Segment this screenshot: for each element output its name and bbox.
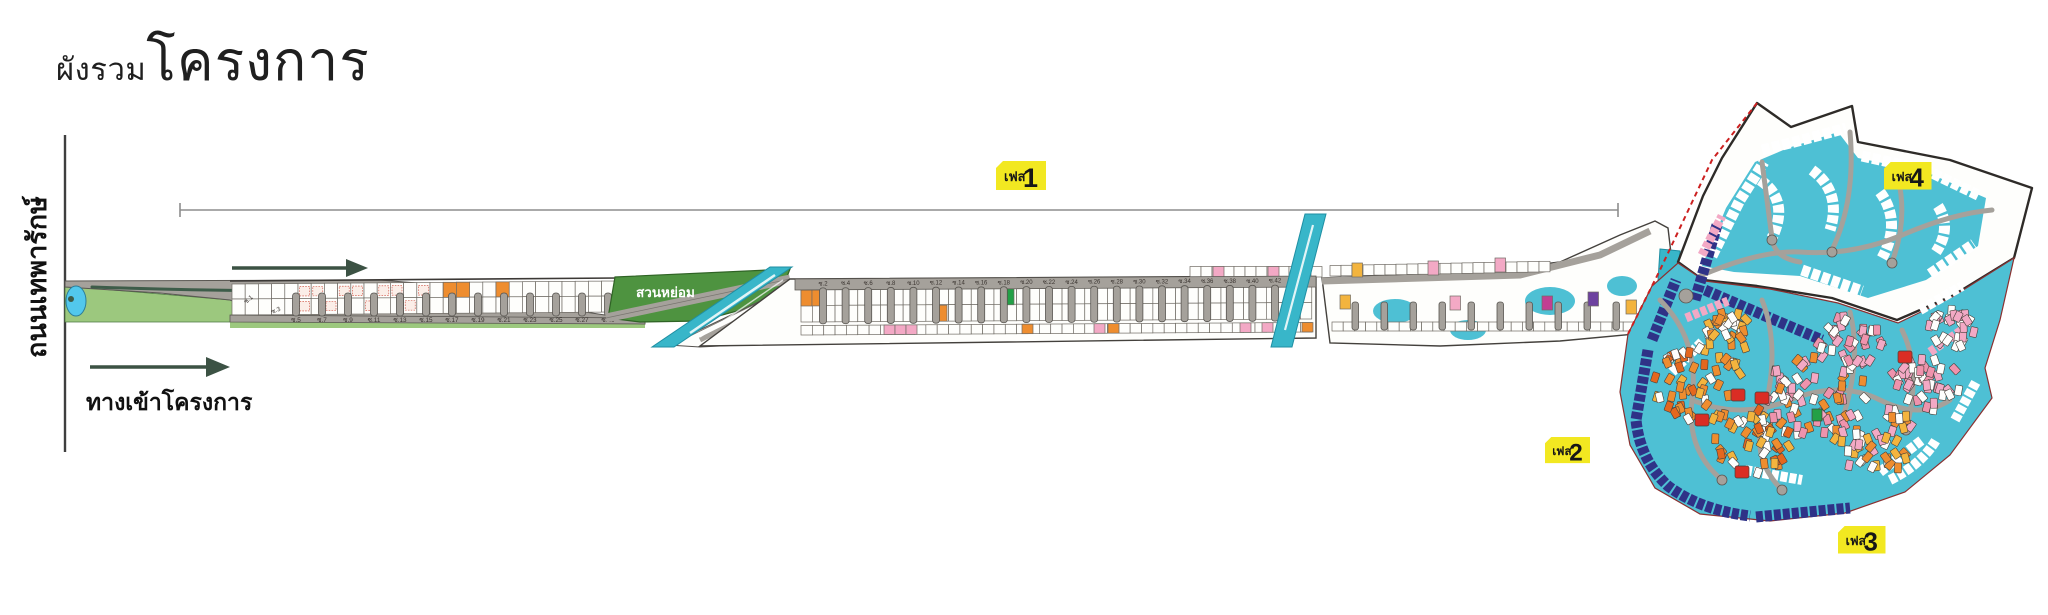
soi-stub-road: [1226, 285, 1233, 321]
soi-stub-road: [345, 293, 352, 316]
colored-plot-cell: [801, 290, 812, 306]
plot-cell: [1255, 287, 1266, 303]
thepharak-road-label: ถนนเทพารักษ์: [21, 195, 52, 358]
colored-plot-cell: [1340, 295, 1351, 309]
plot-cell: [1385, 264, 1396, 275]
plot-cell: [1153, 323, 1164, 333]
plot-cell: [983, 324, 994, 334]
plot-cell: [1330, 266, 1341, 277]
plot-cell: [272, 284, 285, 299]
plot-cell: [949, 325, 960, 335]
soi-stub-road: [933, 287, 940, 323]
plot-cell: [1473, 263, 1484, 274]
plot-cell: [1601, 322, 1612, 331]
plot-cell: [1164, 287, 1175, 303]
cluster-plot: [1918, 354, 1926, 365]
plot-cell: [1511, 322, 1522, 331]
plot-cell: [1073, 324, 1084, 334]
cluster-plot: [1845, 460, 1854, 471]
soi-stub-road: [293, 293, 300, 316]
soi-stub-road: [527, 293, 534, 316]
plot-cell: [1039, 324, 1050, 334]
soi-label: ซ.30: [1133, 278, 1146, 285]
soi-stub-road: [371, 293, 378, 316]
soi-label: ซ.20: [1020, 279, 1033, 286]
plot-cell: [994, 324, 1005, 334]
soi-label: ซ.34: [1178, 278, 1191, 285]
plot-cell: [1590, 322, 1601, 331]
phase4-number: 4: [1910, 165, 1925, 193]
plot-cell: [1363, 265, 1374, 276]
soi-label: ซ.8: [886, 280, 896, 287]
plot-cell: [1506, 262, 1517, 273]
plot-cell: [1190, 267, 1201, 278]
cluster-plot: [1747, 411, 1756, 422]
cluster-plot: [1685, 347, 1694, 358]
plot-cell: [1388, 322, 1399, 331]
plot-cell: [1176, 323, 1187, 333]
soi-stub-road: [1249, 285, 1256, 321]
soi-stub-road: [1381, 302, 1388, 330]
soi-stub-road: [1497, 302, 1504, 330]
soi-stub-road: [1159, 286, 1166, 322]
soi-label: ซ.10: [907, 280, 920, 287]
soi-label: ซ.2: [818, 280, 828, 287]
cluster-plot: [1838, 436, 1846, 447]
cluster-plot: [1873, 325, 1880, 335]
plot-cell: [562, 296, 575, 312]
soi-stub-road: [475, 293, 482, 316]
plot-cell: [1374, 265, 1385, 276]
soi-stub-road: [1000, 287, 1007, 323]
pink-plot-cell: [1268, 267, 1279, 278]
plot-cell: [1366, 322, 1377, 331]
colored-plot-cell: [1542, 296, 1553, 310]
plot-cell: [483, 297, 496, 313]
red-plot: [1731, 389, 1745, 401]
cluster-plot: [1917, 366, 1924, 376]
soi-label: ซ.15: [419, 317, 433, 324]
soi-stub-road: [501, 293, 508, 316]
soi-label: ซ.14: [952, 280, 965, 287]
plot-cell: [1051, 324, 1062, 334]
pink-plot-cell: [1240, 323, 1251, 333]
cluster-plot: [1810, 352, 1818, 363]
plot-cell: [1418, 264, 1429, 275]
plot-cell: [456, 297, 469, 313]
soi-stub-road: [1204, 286, 1211, 322]
plot-cell: [1517, 262, 1528, 273]
pink-plot-cell: [1262, 323, 1273, 333]
soi-label: ซ.16: [975, 279, 988, 286]
plot-cell: [1528, 262, 1539, 273]
soi-label: ซ.5: [291, 317, 301, 324]
red-plot: [1735, 466, 1749, 478]
soi-label: ซ.38: [1224, 278, 1237, 285]
green-plot: [1812, 409, 1822, 421]
phase1-number: 1: [1023, 163, 1038, 193]
cluster-plot: [1889, 412, 1896, 422]
soi-label: ซ.6: [864, 280, 874, 287]
cluster-plot: [1853, 429, 1861, 439]
plot-cell: [1164, 323, 1175, 333]
cluster-plot: [1820, 427, 1828, 438]
cluster-plot: [1894, 463, 1901, 473]
plot-cell: [937, 325, 948, 335]
plot-cell: [1130, 324, 1141, 334]
plot-cell: [801, 326, 812, 336]
entrance-label: ทางเข้าโครงการ: [86, 388, 253, 415]
soi-stub-road: [887, 287, 894, 323]
cluster-plot: [1923, 380, 1931, 391]
soi-label: ซ.28: [1111, 279, 1124, 286]
hatched-plot-cell: [352, 286, 362, 296]
soi-stub-road: [449, 293, 456, 316]
plot-cell: [1478, 322, 1489, 331]
soi-stub-road: [1468, 302, 1475, 330]
cluster-plot: [1701, 359, 1709, 369]
plot-cell: [1187, 323, 1198, 333]
cluster-plot: [1769, 412, 1777, 423]
plot-cell: [1255, 303, 1266, 320]
hatched-plot-cell: [300, 301, 310, 311]
soi-stub-road: [1272, 285, 1279, 321]
soi-stub-road: [319, 293, 326, 316]
plot-cell: [1210, 303, 1221, 320]
strip-section-c: [1322, 221, 1672, 346]
phase-tag-4: เฟส 4: [1884, 162, 1932, 193]
plot-cell: [812, 325, 823, 335]
colored-plot-cell: [1588, 292, 1599, 306]
plot-cell: [1119, 324, 1130, 334]
plot-cell: [869, 325, 880, 335]
soi-label: ซ.4: [841, 280, 851, 287]
plot-cell: [971, 324, 982, 334]
cluster-plot: [1771, 458, 1778, 468]
cluster-plot: [1954, 385, 1963, 396]
soi-label: ซ.11: [368, 317, 381, 324]
soi-label: ซ.32: [1156, 278, 1169, 285]
plot-cell: [835, 325, 846, 335]
red-plot: [1898, 351, 1912, 363]
plot-cell: [1539, 261, 1550, 272]
plot-cell: [1399, 322, 1410, 331]
cluster-plot: [1930, 398, 1937, 408]
plot-cell: [1005, 324, 1016, 334]
plot-cell: [1396, 264, 1407, 275]
colored-plot-cell: [1495, 258, 1506, 272]
soi-label: ซ.13: [393, 317, 407, 324]
soi-stub-road: [579, 293, 586, 316]
phase1-dimension-line: [180, 203, 1618, 217]
plot-cell: [1210, 287, 1221, 303]
soi-label: ซ.42: [1269, 278, 1282, 285]
colored-plot-cell: [1626, 300, 1637, 314]
plot-cell: [1187, 303, 1198, 320]
cluster-plot: [1902, 411, 1909, 421]
plot-cell: [1440, 263, 1451, 274]
plot-cell: [1223, 267, 1234, 278]
plot-cell: [1278, 267, 1289, 278]
plot-cell: [1062, 324, 1073, 334]
plot-cell: [846, 325, 857, 335]
soi-stub-road: [820, 288, 827, 324]
soi-stub-road: [1113, 286, 1120, 322]
cluster-plot: [1855, 439, 1863, 450]
colored-plot-cell: [1450, 296, 1461, 310]
plot-cell: [1451, 263, 1462, 274]
plot-cell: [858, 325, 869, 335]
soi-stub-road: [1613, 302, 1620, 330]
cluster-plot: [1772, 365, 1780, 376]
orange-plot-cell: [456, 282, 469, 297]
strip-direction-arrow: [232, 259, 368, 277]
soi-label: ซ.40: [1246, 278, 1259, 285]
plot-cell: [1534, 322, 1545, 331]
plot-cell: [1221, 323, 1232, 333]
plot-cell: [536, 282, 549, 297]
plot-cell: [536, 297, 549, 313]
plot-cell: [1545, 322, 1556, 331]
soi-label: ซ.9: [343, 317, 353, 324]
orange-plot-cell: [1302, 322, 1313, 332]
plot-cell: [1164, 303, 1175, 320]
hatched-plot-cell: [326, 301, 336, 311]
cluster-plot: [1760, 458, 1768, 469]
soi-stub-road: [842, 288, 849, 324]
plot-cell: [1422, 322, 1433, 331]
pink-plot-cell: [1213, 267, 1224, 278]
soi-stub-road: [1068, 286, 1075, 322]
plot-cell: [430, 297, 443, 313]
plot-cell: [1407, 264, 1418, 275]
plot-cell: [1187, 287, 1198, 303]
phase-tag-3: เฟส 3: [1838, 526, 1886, 557]
soi-stub-road: [1046, 287, 1053, 323]
soi-label: ซ.21: [497, 317, 511, 324]
pink-plot-cell: [895, 325, 906, 335]
phase3-number: 3: [1864, 529, 1878, 557]
plot-cell: [377, 298, 390, 314]
soi-label: ซ.12: [930, 280, 943, 287]
soi-stub-road: [1526, 302, 1533, 330]
colored-plot-cell: [1352, 263, 1363, 277]
pink-plot-cell: [1094, 324, 1105, 334]
plot-cell: [232, 284, 245, 299]
plot-cell: [1234, 267, 1245, 278]
strip-section-b: ซ.2ซ.4ซ.6ซ.8ซ.10ซ.12ซ.14ซ.16ซ.18ซ.20ซ.22…: [700, 267, 1322, 347]
soi-stub-road: [955, 287, 962, 323]
cluster-plot: [1828, 345, 1836, 356]
plot-cell: [258, 284, 271, 299]
soi-stub-road: [423, 293, 430, 316]
plot-cell: [1232, 303, 1243, 320]
plot-cell: [960, 325, 971, 335]
soi-label: ซ.7: [317, 317, 327, 324]
garden-label: สวนหย่อม: [636, 285, 695, 300]
plot-cell: [824, 325, 835, 335]
soi-stub-road: [1352, 302, 1359, 330]
plot-cell: [1210, 323, 1221, 333]
plot-cell: [1455, 322, 1466, 331]
plot-cell: [258, 299, 271, 315]
plot-cell: [351, 298, 364, 314]
plot-cell: [1201, 267, 1212, 278]
plot-cell: [509, 282, 522, 297]
strip-section-a: ซ.5ซ.7ซ.9ซ.11ซ.13ซ.15ซ.17ซ.19ซ.21ซ.23ซ.2…: [230, 278, 645, 324]
soi-label: ซ.17: [445, 317, 459, 324]
soi-stub-road: [910, 287, 917, 323]
plot-cell: [430, 282, 443, 297]
plot-cell: [588, 296, 601, 312]
cluster-plot: [1895, 413, 1903, 423]
cluster-plot: [1844, 446, 1852, 456]
soi-label: ซ.24: [1065, 279, 1078, 286]
soi-label: ซ.27: [575, 317, 589, 324]
phase2-number: 2: [1569, 439, 1583, 466]
plot-cell: [1341, 265, 1352, 276]
plot-cell: [926, 325, 937, 335]
orange-plot-cell: [1108, 324, 1119, 334]
orange-plot-cell: [1022, 324, 1033, 334]
soi-stub-road: [865, 288, 872, 324]
soi-label: ซ.36: [1201, 278, 1214, 285]
plot-cell: [324, 283, 337, 298]
soi-stub-road: [1136, 286, 1143, 322]
plot-cell: [1142, 323, 1153, 333]
plot-cell: [1567, 322, 1578, 331]
plot-cell: [1332, 322, 1343, 331]
cluster-plot: [1811, 373, 1819, 384]
colored-plot-cell: [1428, 261, 1439, 275]
soi-stub-road: [1181, 286, 1188, 322]
pink-plot-cell: [884, 325, 895, 335]
soi-label: ซ.19: [471, 317, 485, 324]
plot-cell: [562, 281, 575, 296]
soi-stub-road: [1439, 302, 1446, 330]
red-plot: [1755, 392, 1769, 404]
hatched-plot-cell: [300, 286, 310, 296]
plot-cell: [483, 282, 496, 297]
plot-cell: [1245, 267, 1256, 278]
hatched-plot-cell: [379, 286, 389, 296]
soi-stub-road: [1091, 286, 1098, 322]
plot-cell: [801, 306, 812, 323]
plot-cell: [1256, 267, 1267, 278]
entrance-arrow: [90, 357, 230, 377]
red-plot: [1695, 414, 1709, 426]
phase-tag-1: เฟส 1: [996, 161, 1046, 193]
soi-label: ซ.25: [549, 317, 563, 324]
cluster-plot: [1838, 381, 1846, 391]
master-plan-map: ถนนเทพารักษ์ ทางเข้าโครงการ ซ.5ซ.7ซ.9ซ.1…: [0, 0, 2048, 615]
plot-cell: [1232, 287, 1243, 303]
plot-cell: [1462, 263, 1473, 274]
hatched-plot-cell: [405, 301, 415, 311]
soi-stub-road: [978, 287, 985, 323]
soi-label: ซ.18: [998, 279, 1011, 286]
cluster-plot: [1712, 434, 1719, 444]
soi-label: ซ.22: [1043, 279, 1056, 286]
plot-cell: [404, 283, 417, 298]
pond-c4: [1607, 276, 1637, 296]
soi-stub-road: [1023, 287, 1030, 323]
plot-cell: [1198, 323, 1209, 333]
phase-tag-2: เฟส 2: [1545, 437, 1590, 466]
cluster-plot: [1859, 376, 1867, 387]
soi-label: ซ.23: [523, 317, 537, 324]
plot-cell: [588, 281, 601, 296]
soi-stub-road: [1555, 302, 1562, 330]
soi-label: ซ.26: [1088, 279, 1101, 286]
soi-stub-road: [397, 293, 404, 316]
plot-cell: [509, 297, 522, 313]
soi-stub-road: [553, 293, 560, 316]
plot-cell: [1484, 262, 1495, 273]
pink-plot-cell: [906, 325, 917, 335]
soi-stub-road: [1410, 302, 1417, 330]
